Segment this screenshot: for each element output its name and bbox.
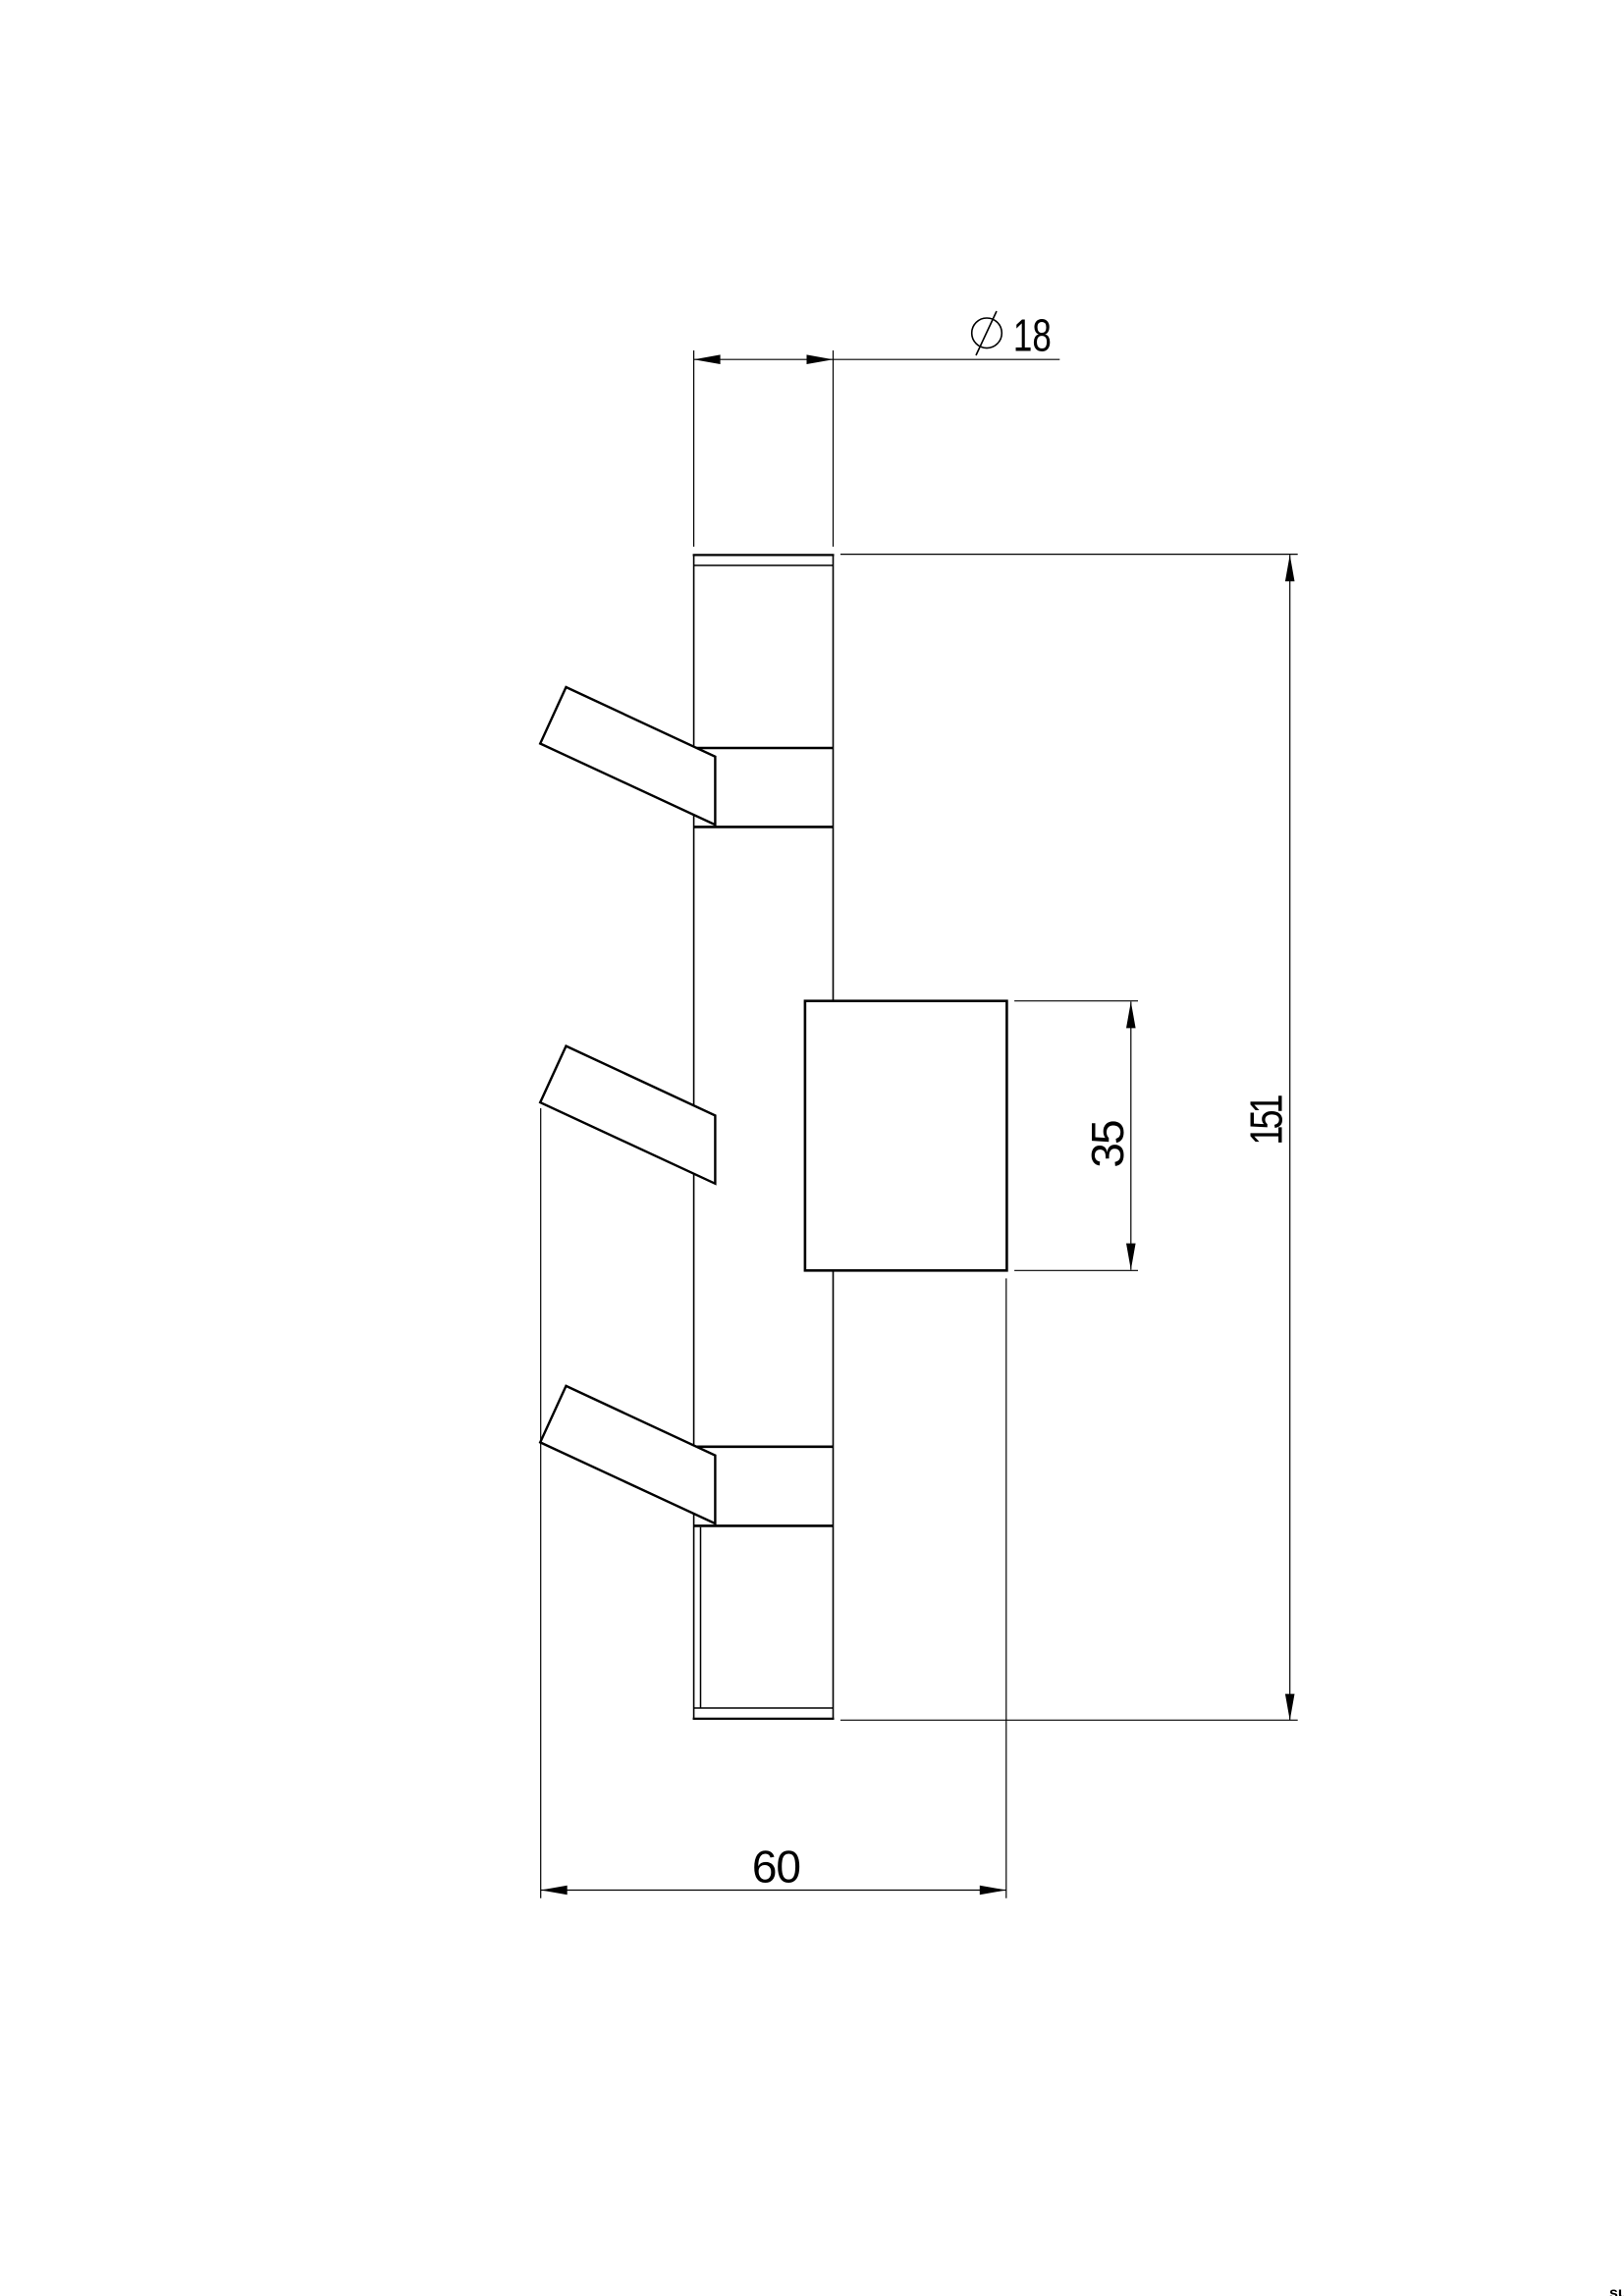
svg-text:151: 151 xyxy=(1241,1095,1291,1145)
svg-text:18: 18 xyxy=(1013,310,1052,361)
svg-text:35: 35 xyxy=(1082,1121,1133,1168)
svg-text:60: 60 xyxy=(752,1841,800,1892)
svg-text:su: su xyxy=(1609,2285,1624,2296)
